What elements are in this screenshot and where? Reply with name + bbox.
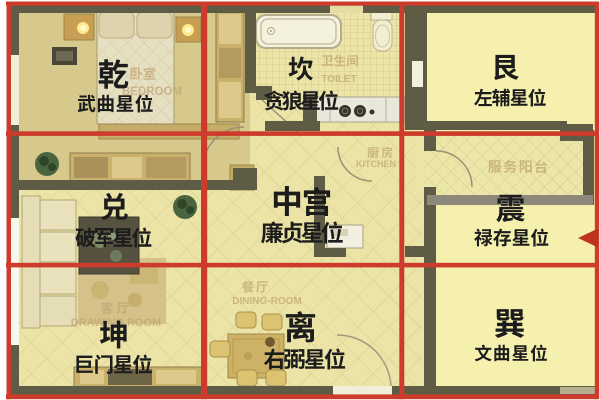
svg-text:KITCHEN: KITCHEN: [356, 159, 396, 169]
svg-text:DINING-ROOM: DINING-ROOM: [232, 296, 301, 307]
svg-text:TOILET: TOILET: [321, 74, 356, 85]
